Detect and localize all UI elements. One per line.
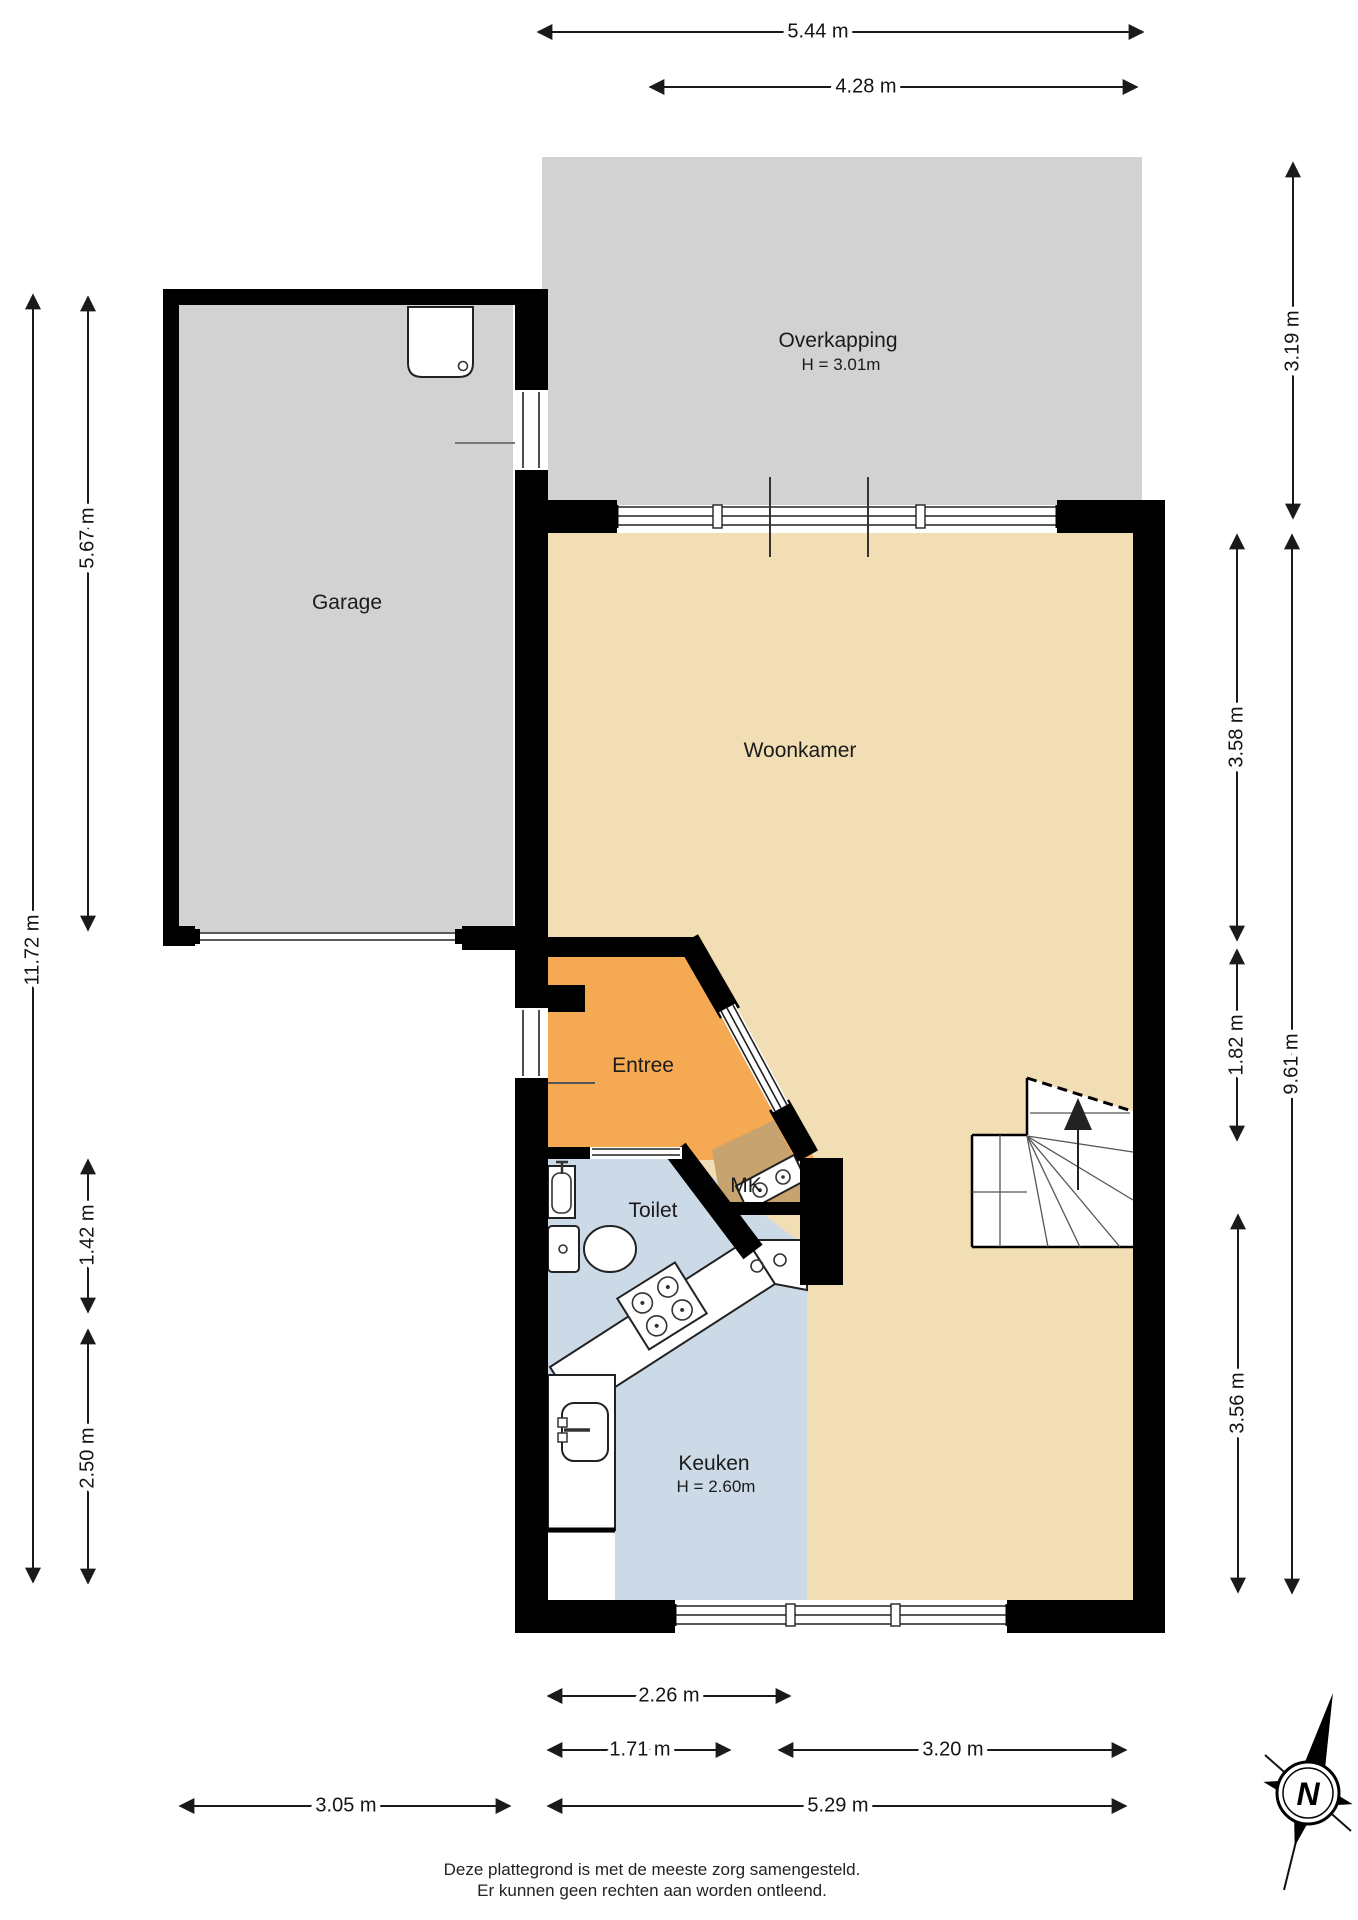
hand-basin-icon — [548, 1162, 575, 1218]
dimension-label: 3.56 m — [1226, 1372, 1248, 1433]
dimension-top-total-width: 5.44 m — [538, 20, 1143, 42]
entree-north-wall — [548, 937, 698, 957]
dimension-label: 3.19 m — [1281, 310, 1303, 371]
toilet-door — [590, 1147, 682, 1159]
keuken-east-wall — [800, 1158, 843, 1285]
compass-north-label: N — [1296, 1776, 1320, 1812]
dimension-bottom-house-width: 5.29 m — [548, 1794, 1126, 1816]
dimension-left-keuken-depth: 2.50 m — [76, 1330, 98, 1583]
dimension-right-house-depth: 9.61 m — [1280, 535, 1302, 1593]
dimension-bottom-keuken-inner-width: 1.71 m — [548, 1738, 730, 1760]
dimension-right-overkapping-depth: 3.19 m — [1281, 163, 1303, 518]
keuken-south-window — [675, 1604, 1007, 1626]
dimension-bottom-garage-width: 3.05 m — [180, 1794, 510, 1816]
floor-plan-page: Overkapping H = 3.01m Garage Woonkamer E… — [0, 0, 1358, 1920]
garage-south-wall-stub — [163, 926, 195, 946]
south-wall-left — [515, 1600, 675, 1633]
entree-west-stub — [548, 985, 585, 1012]
dimension-right-entree-depth: 1.82 m — [1225, 950, 1247, 1140]
woonkamer-north-window — [617, 505, 1057, 528]
dimension-label: 1.82 m — [1225, 1014, 1247, 1075]
dimension-left-garage-depth: 5.67 m — [76, 297, 98, 930]
overkapping-label: Overkapping — [778, 329, 897, 352]
kitchen-sink-icon — [558, 1403, 608, 1461]
dimension-right-woonkamer-depth: 3.58 m — [1225, 535, 1247, 940]
entree-label: Entree — [612, 1054, 674, 1077]
dimension-label: 3.20 m — [922, 1738, 983, 1760]
dimension-right-keuken-depth: 3.56 m — [1226, 1215, 1248, 1592]
dimension-label: 2.26 m — [638, 1684, 699, 1706]
keuken-height-label: H = 2.60m — [677, 1477, 756, 1496]
dimension-label: 3.58 m — [1225, 706, 1247, 767]
footer-disclaimer-line1: Deze plattegrond is met de meeste zorg s… — [444, 1860, 861, 1879]
mk-label: MK — [730, 1174, 762, 1197]
keuken-floor-white — [548, 1533, 615, 1600]
floor-plan-drawing: Overkapping H = 3.01m Garage Woonkamer E… — [0, 0, 1358, 1920]
woonkamer-north-wall-left — [515, 500, 617, 533]
dimension-label: 2.50 m — [76, 1427, 98, 1488]
toilet-north-wall-segment — [548, 1147, 590, 1159]
dimension-label: 9.61 m — [1280, 1033, 1302, 1094]
dimension-bottom-woonkamer-width: 3.20 m — [779, 1738, 1126, 1760]
garage-label: Garage — [312, 591, 382, 614]
dimension-left-total-depth: 11.72 m — [21, 295, 43, 1582]
dimension-label: 5.29 m — [807, 1794, 868, 1816]
overkapping-height-label: H = 3.01m — [802, 355, 881, 374]
garage-north-wall — [163, 289, 547, 305]
dimension-top-overkapping-width: 4.28 m — [650, 75, 1137, 97]
dimension-label: 3.05 m — [315, 1794, 376, 1816]
west-wall-upper — [515, 289, 548, 390]
room-garage — [178, 305, 513, 932]
compass-rose-icon: N — [1250, 1682, 1358, 1890]
dimension-bottom-keuken-width: 2.26 m — [548, 1684, 790, 1706]
footer-disclaimer-line2: Er kunnen geen rechten aan worden ontlee… — [477, 1881, 827, 1900]
woonkamer-label: Woonkamer — [744, 739, 857, 762]
east-wall — [1133, 500, 1165, 1633]
west-wall-middle — [515, 470, 548, 1008]
boiler-icon — [408, 307, 473, 377]
keuken-label: Keuken — [678, 1452, 749, 1475]
dimension-label: 4.28 m — [835, 75, 896, 97]
toilet-icon — [548, 1226, 636, 1272]
toilet-label: Toilet — [628, 1199, 677, 1222]
west-wall-lower — [515, 1078, 548, 1633]
south-wall-right — [1007, 1600, 1165, 1633]
dimension-label: 11.72 m — [21, 915, 43, 986]
dimension-label: 1.71 m — [609, 1738, 670, 1760]
dimension-label: 5.67 m — [76, 507, 98, 568]
dimension-left-toilet-depth: 1.42 m — [76, 1160, 98, 1312]
dimension-label: 5.44 m — [787, 20, 848, 42]
dimension-label: 1.42 m — [76, 1204, 98, 1265]
garage-west-wall — [163, 289, 179, 946]
